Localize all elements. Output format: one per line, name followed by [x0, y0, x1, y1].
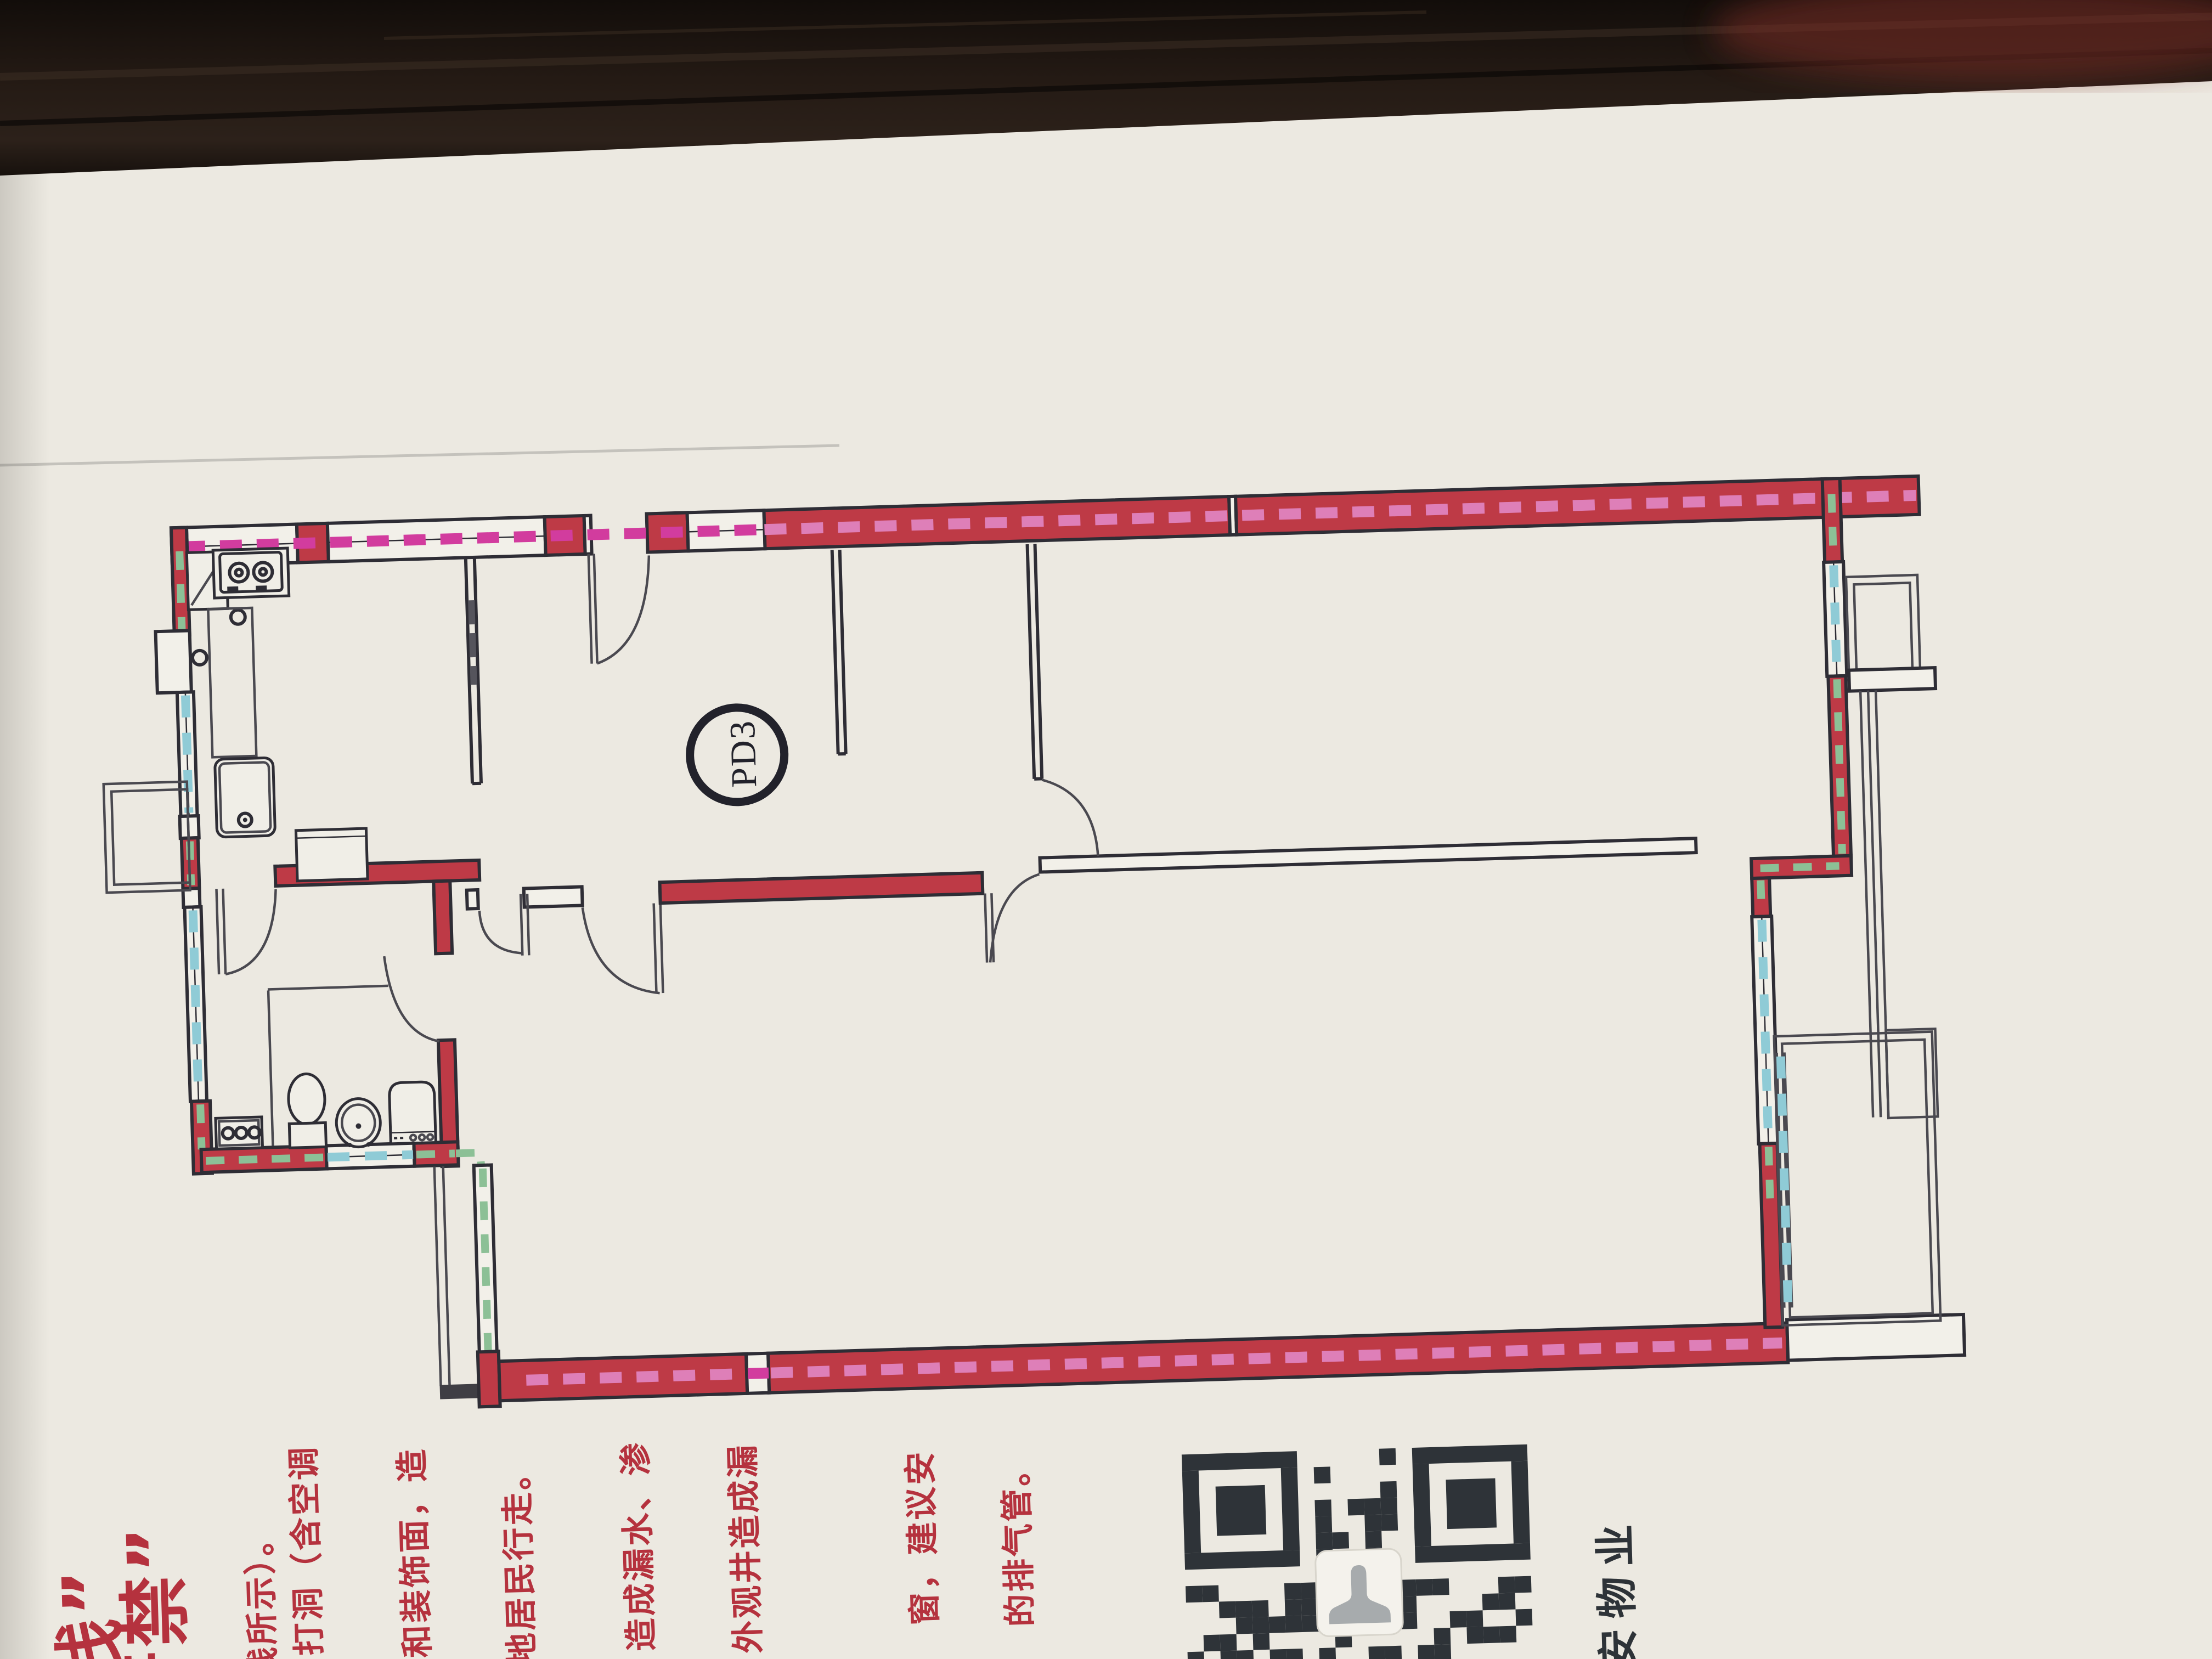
notice-column-1: 红线所示）。 — [240, 1520, 284, 1659]
wash-basin — [336, 1098, 381, 1147]
photo-of-floorplan-poster: PD3 线” 严禁” 红线所示）。 打洞（含空调 和装饰面，造 地居民行走。 造… — [0, 0, 2212, 1659]
notice-column-7: 窗，建议安 — [901, 1449, 944, 1626]
notice-column-5: 造成漏水、渗 — [617, 1440, 661, 1652]
floor-plan-svg: PD3 线” 严禁” 红线所示）。 打洞（含空调 和装饰面，造 地居民行走。 造… — [0, 0, 2212, 1659]
qr-caption: 安物业 — [1590, 1514, 1643, 1659]
notice-column-2: 打洞（含空调 — [285, 1444, 329, 1656]
washing-machine — [389, 1082, 436, 1144]
knob-panel — [216, 1117, 263, 1149]
notice-column-3: 和装饰面，造 — [393, 1447, 437, 1658]
sliding-door-track — [468, 600, 475, 624]
notice-column-6: 外观井造成漏 — [724, 1442, 768, 1654]
kitchen-sink — [215, 758, 275, 837]
pd3-text: PD3 — [723, 719, 765, 788]
poster-left-edge-shadow — [0, 143, 49, 1659]
notice-column-4: 地居民行走。 — [497, 1454, 541, 1659]
appliance — [296, 828, 368, 881]
gas-stove — [213, 548, 289, 598]
toilet — [288, 1073, 326, 1148]
notice-column-8: 的排气管。 — [997, 1451, 1040, 1627]
notice-title-column-2: 严禁” — [111, 1522, 201, 1659]
